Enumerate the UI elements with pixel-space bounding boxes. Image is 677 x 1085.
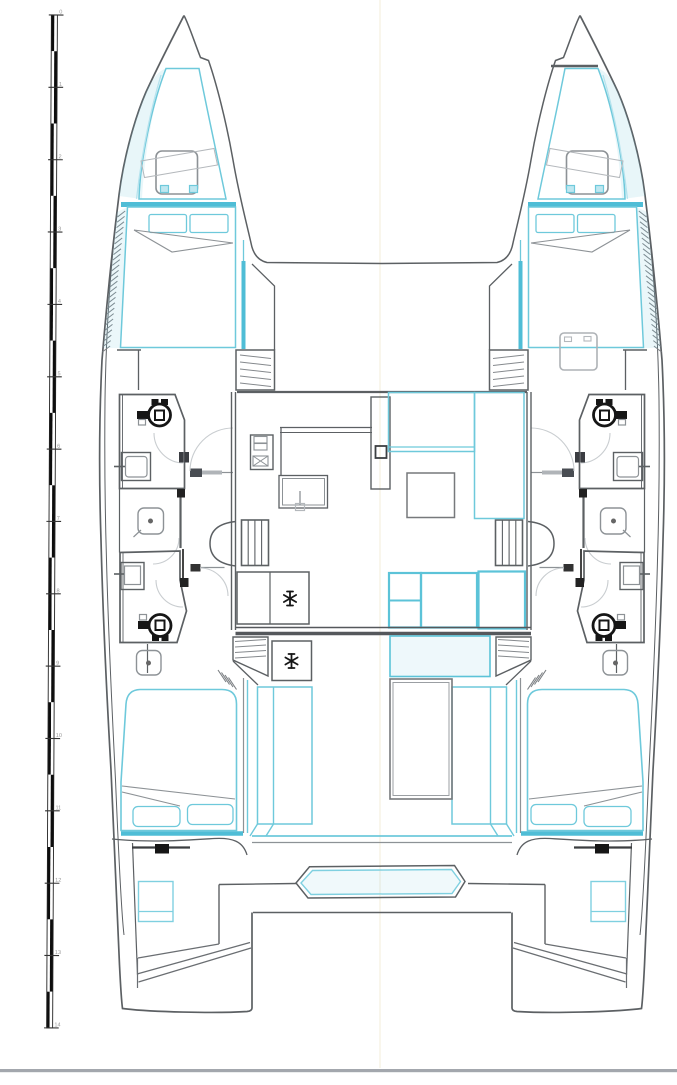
svg-text:1: 1 <box>59 82 62 88</box>
svg-text:9: 9 <box>56 661 59 667</box>
svg-text:14: 14 <box>54 1022 60 1028</box>
svg-text:6: 6 <box>57 444 60 450</box>
svg-text:11: 11 <box>55 805 61 811</box>
svg-text:10: 10 <box>56 733 62 739</box>
svg-text:7: 7 <box>57 516 60 522</box>
svg-text:0: 0 <box>59 10 62 16</box>
svg-text:8: 8 <box>56 588 59 594</box>
svg-text:13: 13 <box>55 950 61 956</box>
svg-text:4: 4 <box>58 299 61 305</box>
svg-text:5: 5 <box>57 371 60 377</box>
svg-text:3: 3 <box>58 227 61 233</box>
svg-text:2: 2 <box>59 154 62 160</box>
svg-text:12: 12 <box>55 878 61 884</box>
